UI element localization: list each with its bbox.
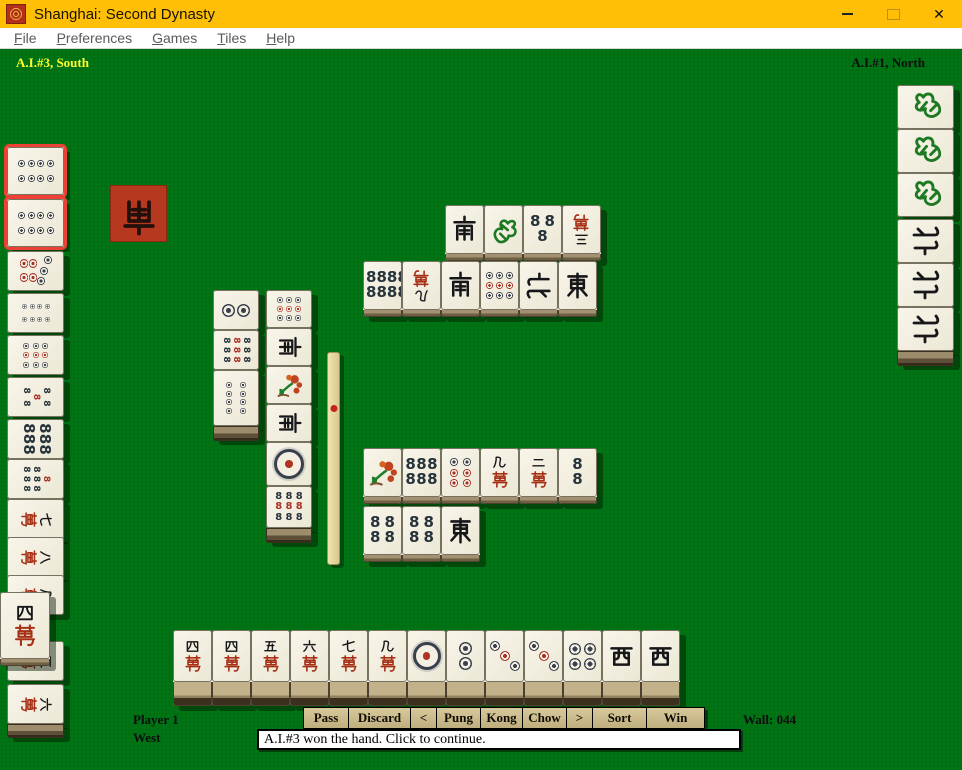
stick-dot (330, 405, 337, 412)
tile-9-dot (7, 335, 64, 375)
tile-south-wind (266, 328, 312, 366)
tile-8-man (7, 537, 64, 577)
tile-2-dot[interactable] (446, 630, 485, 706)
menu-file[interactable]: File (4, 30, 47, 46)
tile-5-bamboo: 88888 (7, 377, 64, 417)
kong-button[interactable]: Kong (480, 708, 522, 728)
close-button[interactable]: ✕ (916, 0, 962, 28)
tile-6-bamboo: 888888 (7, 419, 64, 459)
player-wind-label: West (133, 730, 160, 746)
pung-button[interactable]: Pung (436, 708, 480, 728)
tile-3-dot[interactable] (524, 630, 563, 706)
west-meld-column-b-base (266, 528, 312, 543)
tile-8-dot (7, 199, 64, 247)
tile-flower (363, 448, 402, 504)
minimize-button[interactable] (824, 0, 870, 28)
win-button[interactable]: Win (646, 708, 704, 728)
tile-9-man[interactable] (368, 630, 407, 706)
maximize-button[interactable] (870, 0, 916, 28)
tile-7-man[interactable] (329, 630, 368, 706)
tile-9-bamboo: 888888888 (266, 486, 312, 528)
tile-9-dot (266, 290, 312, 328)
tile-north-wind (897, 219, 954, 263)
window-title: Shanghai: Second Dynasty (34, 6, 215, 23)
discard-button[interactable]: Discard (348, 708, 410, 728)
maximize-icon (887, 9, 900, 20)
app-icon (6, 4, 26, 24)
tile-6-man (7, 684, 64, 724)
tile-green-dragon (897, 129, 954, 173)
tile-4-man (0, 592, 50, 666)
tile-8-dot (213, 370, 259, 426)
round-wind-indicator (110, 185, 167, 242)
tile-9-man (480, 448, 519, 504)
tile-9-dot (480, 261, 519, 317)
north-player-label: A.I.#1, North (851, 55, 925, 71)
arrow-right-button[interactable]: > (566, 708, 592, 728)
pass-button[interactable]: Pass (304, 708, 348, 728)
sort-button[interactable]: Sort (592, 708, 646, 728)
south-exposed-hand-base (7, 724, 64, 738)
tile-5-man[interactable] (251, 630, 290, 706)
tile-green-dragon (484, 205, 523, 261)
tile-8-dot (7, 293, 64, 333)
dealer-stick (327, 352, 340, 565)
tile-4-man[interactable] (212, 630, 251, 706)
window-controls: ✕ (824, 0, 962, 28)
tile-4-dot[interactable] (563, 630, 602, 706)
tile-4-bamboo: 8888 (363, 506, 402, 562)
tile-2-man (519, 448, 558, 504)
player-name-label: Player 1 (133, 712, 179, 728)
tile-8-bamboo: 88888888 (363, 261, 402, 317)
tile-1-dot (266, 442, 312, 486)
tile-7-man (7, 499, 64, 539)
tile-south-wind (441, 261, 480, 317)
tile-east-wind (441, 506, 480, 562)
status-bar[interactable]: A.I.#3 won the hand. Click to continue. (257, 729, 741, 750)
tile-green-dragon (897, 85, 954, 129)
tile-flower (266, 366, 312, 404)
tile-9-bamboo: 888888888 (213, 330, 259, 370)
tile-north-wind (897, 307, 954, 351)
tile-west-wind[interactable] (602, 630, 641, 706)
tile-2-dot (213, 290, 259, 330)
menu-preferences[interactable]: Preferences (47, 30, 143, 46)
arrow-left-button[interactable]: < (410, 708, 436, 728)
tile-3-bamboo: 888 (523, 205, 562, 261)
south-player-label: A.I.#3, South (16, 55, 89, 71)
tile-8-dot (7, 147, 64, 195)
tile-north-wind (897, 263, 954, 307)
tile-south-wind (266, 404, 312, 442)
tile-green-dragon (897, 173, 954, 217)
close-icon: ✕ (933, 7, 945, 21)
menu-help[interactable]: Help (256, 30, 305, 46)
minimize-icon (842, 13, 853, 15)
tile-1-dot[interactable] (407, 630, 446, 706)
tile-west-wind[interactable] (641, 630, 680, 706)
tile-east-wind (558, 261, 597, 317)
tile-7-bamboo: 8888888 (7, 459, 64, 499)
action-button-row: PassDiscard<PungKongChow>SortWin (303, 707, 705, 729)
menu-tiles[interactable]: Tiles (207, 30, 256, 46)
title-bar[interactable]: Shanghai: Second Dynasty ✕ (0, 0, 962, 28)
wall-count-label: Wall: 044 (743, 712, 796, 728)
tile-6-man[interactable] (290, 630, 329, 706)
north-exposed-hand-base (897, 351, 954, 366)
tile-9-man (402, 261, 441, 317)
status-message: A.I.#3 won the hand. Click to continue. (259, 732, 486, 748)
tile-4-bamboo: 8888 (402, 506, 441, 562)
tile-2-bamboo: 88 (558, 448, 597, 504)
tile-3-man (562, 205, 601, 261)
west-meld-column-a-base (213, 426, 259, 441)
tile-north-wind (519, 261, 558, 317)
menu-bar: FilePreferencesGamesTilesHelp (0, 28, 962, 49)
tile-3-dot[interactable] (485, 630, 524, 706)
tile-7-dot (7, 251, 64, 291)
tile-6-bamboo: 888888 (402, 448, 441, 504)
tile-6-dot (441, 448, 480, 504)
tile-4-man[interactable] (173, 630, 212, 706)
tile-south-wind (445, 205, 484, 261)
menu-games[interactable]: Games (142, 30, 207, 46)
chow-button[interactable]: Chow (522, 708, 566, 728)
